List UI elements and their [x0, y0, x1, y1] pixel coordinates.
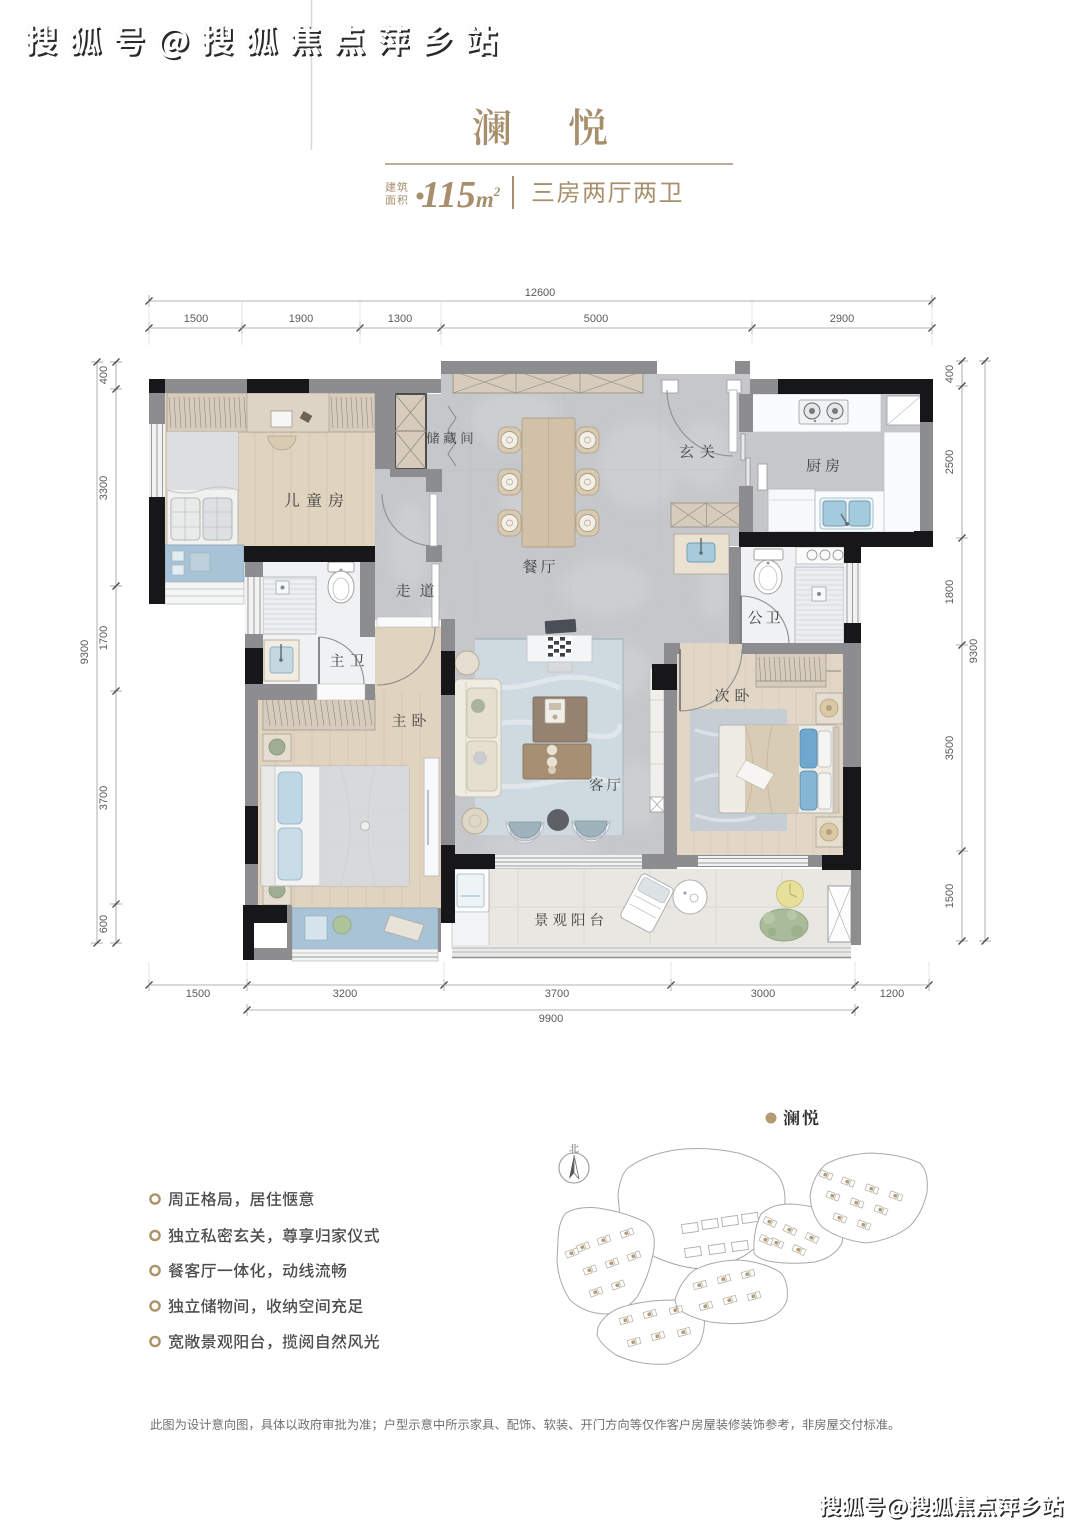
- svg-text:400: 400: [944, 365, 956, 383]
- svg-text:1500: 1500: [944, 884, 956, 908]
- svg-text:2900: 2900: [830, 313, 854, 325]
- svg-text:5000: 5000: [584, 313, 608, 325]
- svg-text:9300: 9300: [968, 639, 980, 663]
- svg-text:3500: 3500: [944, 736, 956, 760]
- svg-text:2500: 2500: [944, 450, 956, 474]
- svg-text:1700: 1700: [98, 626, 110, 650]
- svg-text:9900: 9900: [539, 1013, 563, 1025]
- svg-text:12600: 12600: [525, 287, 556, 299]
- svg-text:1200: 1200: [880, 988, 904, 1000]
- svg-text:9300: 9300: [79, 640, 91, 664]
- svg-text:3700: 3700: [98, 786, 110, 810]
- svg-text:1500: 1500: [186, 988, 210, 1000]
- svg-text:3200: 3200: [333, 988, 357, 1000]
- svg-text:3700: 3700: [545, 988, 569, 1000]
- svg-text:3000: 3000: [751, 988, 775, 1000]
- svg-text:400: 400: [98, 366, 110, 384]
- svg-text:3300: 3300: [98, 476, 110, 500]
- svg-text:1800: 1800: [944, 580, 956, 604]
- svg-text:1300: 1300: [388, 313, 412, 325]
- svg-text:1900: 1900: [289, 313, 313, 325]
- svg-text:1500: 1500: [184, 313, 208, 325]
- svg-text:600: 600: [98, 915, 110, 933]
